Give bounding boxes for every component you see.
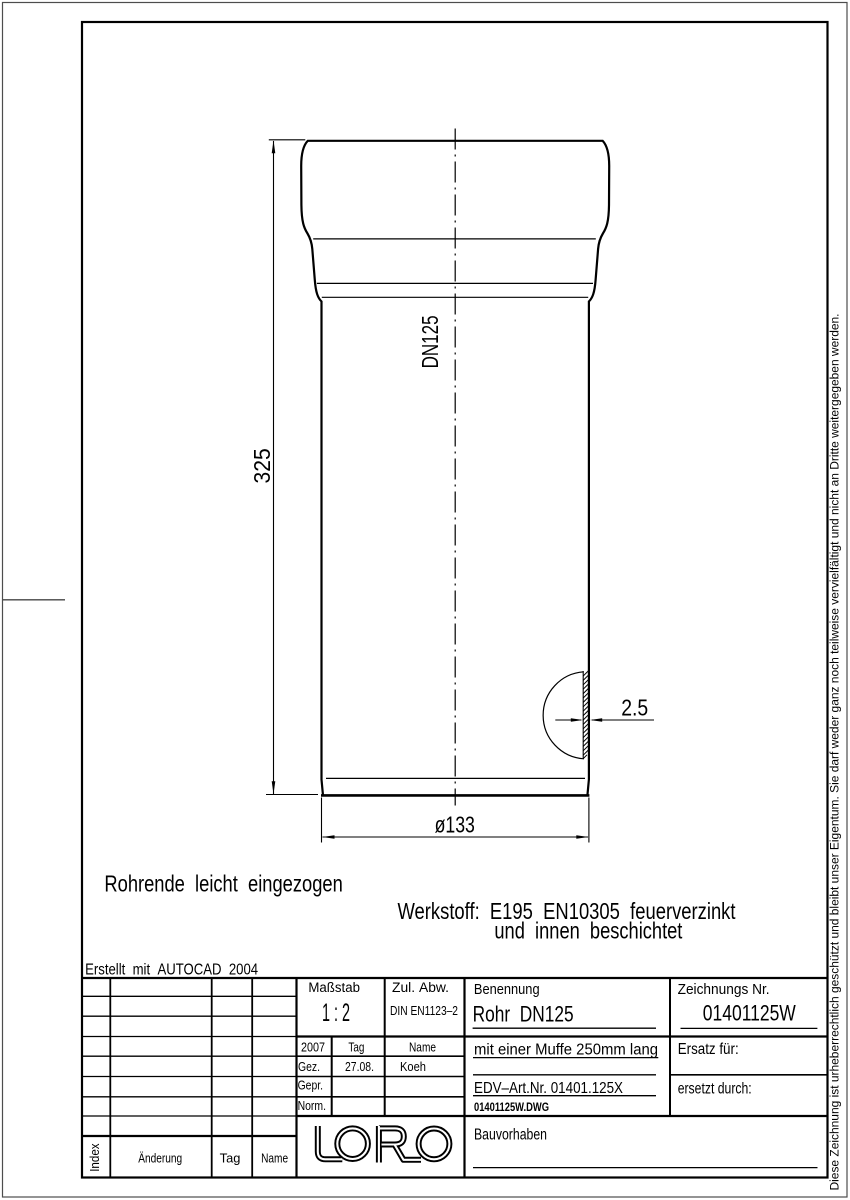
svg-text:Rohr DN125: Rohr DN125 (473, 1001, 574, 1026)
svg-text:Name: Name (261, 1152, 288, 1166)
svg-text:Index: Index (88, 1143, 102, 1172)
svg-text:Name: Name (409, 1041, 436, 1055)
svg-text:ersetzt durch:: ersetzt durch: (678, 1081, 752, 1098)
svg-text:27.08.: 27.08. (345, 1060, 374, 1074)
svg-text:1 : 2: 1 : 2 (322, 999, 350, 1027)
svg-text:Diese Zeichnung ist urheberrec: Diese Zeichnung ist urheberrechtlich ges… (829, 313, 841, 1190)
svg-text:und innen beschichtet: und innen beschichtet (494, 918, 682, 944)
svg-text:ø133: ø133 (435, 811, 475, 837)
svg-text:Koeh: Koeh (400, 1060, 426, 1074)
svg-text:Zul. Abw.: Zul. Abw. (392, 980, 449, 995)
svg-text:Gepr.: Gepr. (298, 1078, 323, 1092)
svg-text:Tag: Tag (348, 1041, 364, 1055)
svg-text:2.5: 2.5 (621, 695, 648, 721)
svg-text:Erstellt mit AUTOCAD 2004: Erstellt mit AUTOCAD 2004 (85, 962, 258, 979)
svg-text:Ersatz für:: Ersatz für: (678, 1041, 739, 1058)
svg-text:Benennung: Benennung (474, 981, 540, 998)
svg-text:EDV–Art.Nr. 01401.125X: EDV–Art.Nr. 01401.125X (474, 1080, 624, 1097)
svg-text:Rohrende leicht eingezogen: Rohrende leicht eingezogen (104, 871, 342, 897)
svg-text:Bauvorhaben: Bauvorhaben (474, 1126, 547, 1143)
svg-text:DIN EN1123–2: DIN EN1123–2 (390, 1004, 458, 1018)
svg-text:mit einer Muffe 250mm lang: mit einer Muffe 250mm lang (474, 1042, 658, 1059)
svg-text:2007: 2007 (301, 1041, 325, 1055)
svg-text:Norm.: Norm. (298, 1099, 326, 1113)
svg-text:Tag: Tag (220, 1152, 241, 1166)
svg-text:Maßstab: Maßstab (308, 980, 360, 995)
svg-text:Gez.: Gez. (298, 1060, 320, 1074)
svg-text:DN125: DN125 (417, 315, 443, 368)
svg-text:325: 325 (249, 448, 275, 483)
svg-text:01401125W.DWG: 01401125W.DWG (474, 1100, 549, 1114)
svg-text:Änderung: Änderung (138, 1152, 182, 1166)
svg-text:Zeichnungs Nr.: Zeichnungs Nr. (678, 981, 770, 998)
svg-text:01401125W: 01401125W (703, 1001, 797, 1026)
